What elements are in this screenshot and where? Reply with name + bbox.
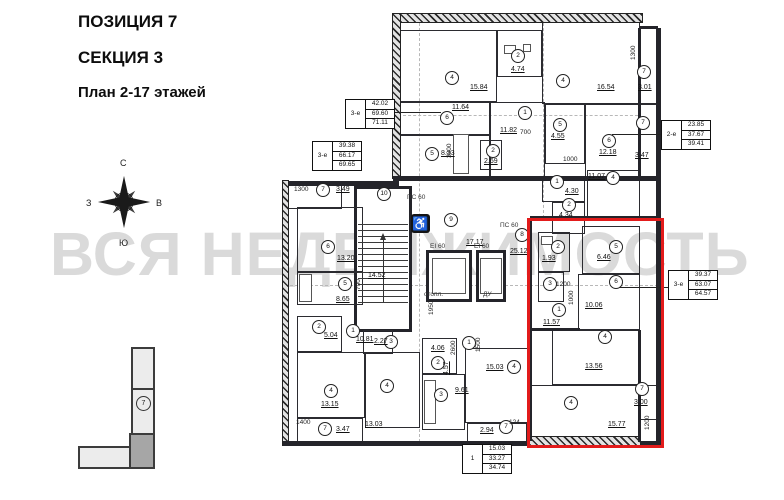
room-number-circle: 1: [462, 336, 476, 350]
room-area-label: 12.18: [599, 149, 617, 156]
room-area-label: 15.03: [486, 364, 504, 371]
room-area-label: 9.61: [455, 387, 469, 394]
unit-areas: 39.3866.1769.65: [333, 142, 361, 170]
unit-type-label: 3-е: [346, 100, 366, 128]
room-area-label: 11.82: [500, 127, 517, 134]
annotation-label: EI 60: [430, 243, 445, 250]
wall-segment: [640, 26, 658, 29]
locator-section-divider: [132, 388, 154, 390]
room-area-label: 4.74: [511, 66, 525, 73]
table-leader-line: [388, 112, 441, 113]
room-number-circle: 4: [324, 384, 338, 398]
room-area-label: 4.57: [443, 361, 450, 375]
room-number-circle: 4: [445, 71, 459, 85]
room-area-label: 2.69: [484, 158, 498, 165]
room-outline: [465, 348, 530, 423]
unit-type-label: 3-е: [669, 271, 689, 299]
dimension-label: 1500: [475, 338, 482, 352]
dimension-label: 700: [355, 279, 362, 290]
highlighted-apartment-outline: [527, 218, 664, 448]
stair-direction-arrow: [383, 236, 384, 302]
unit-areas: 15.0333.2734.74: [483, 445, 511, 473]
room-number-circle: 4: [606, 171, 620, 185]
unit-info-table: 3-е39.3866.1769.65: [312, 141, 362, 171]
room-area-label: 15.84: [470, 84, 488, 91]
annotation-label: ДУ: [483, 291, 492, 298]
room-area-label: 25.12: [510, 248, 528, 255]
room-number-circle: 3: [434, 388, 448, 402]
dimension-label: 1300: [630, 46, 637, 60]
room-number-circle: 2: [486, 144, 500, 158]
room-number-circle: 6: [321, 240, 335, 254]
title-block: ПОЗИЦИЯ 7 СЕКЦИЯ 3 План 2-17 этажей: [78, 12, 206, 101]
wall-segment: [283, 181, 288, 445]
locator-current-section: [129, 433, 155, 469]
room-area-label: 4.55: [551, 133, 565, 140]
dimension-label: 1400: [296, 419, 310, 426]
room-number-circle: 5: [425, 147, 439, 161]
room-number-circle: 4: [380, 379, 394, 393]
room-area-label: 5.04: [324, 332, 338, 339]
room-number-circle: 4: [556, 74, 570, 88]
room-area-label: 11.07: [588, 173, 605, 180]
floor-plan-sheet: ПОЗИЦИЯ 7 СЕКЦИЯ 3 План 2-17 этажей ВСЯ …: [0, 0, 784, 500]
room-number-circle: 10: [377, 187, 391, 201]
unit-type-label: 3-е: [313, 142, 333, 170]
wheelchair-accessible-icon: ♿: [411, 214, 430, 233]
annotation-label: EI 60: [474, 243, 489, 250]
room-number-circle: 9: [444, 213, 458, 227]
annotation-label: отопл.: [424, 291, 443, 298]
bathroom-fixture: [523, 44, 531, 52]
dimension-label: 700: [520, 129, 531, 136]
unit-info-table: 3-е42.0269.6071.11: [345, 99, 395, 129]
room-number-circle: 4: [507, 360, 521, 374]
room-area-label: 8.65: [336, 296, 350, 303]
room-area-label: 3.49: [336, 186, 350, 193]
kitchen-counter: [299, 274, 312, 302]
elevator-car: [432, 258, 466, 294]
room-area-label: 16.54: [597, 84, 615, 91]
unit-areas: 39.3763.0764.57: [689, 271, 717, 299]
unit-info-table: 3-е39.3763.0764.57: [668, 270, 718, 300]
dimension-label: 124: [509, 419, 520, 426]
locator-horizontal-wing: [78, 446, 131, 469]
room-number-circle: 5: [338, 277, 352, 291]
room-area-label: 13.15: [321, 401, 339, 408]
wall-segment: [393, 14, 642, 22]
room-area-label: 2.27: [374, 338, 388, 345]
room-number-circle: 2: [511, 49, 525, 63]
dimension-label: 2600: [450, 341, 457, 355]
locator-position-number: 7: [136, 396, 151, 411]
room-area-label: 4.30: [565, 188, 579, 195]
room-area-label: 2.94: [480, 427, 494, 434]
unit-info-table: 115.0333.2734.74: [462, 444, 512, 474]
room-number-circle: 1: [550, 175, 564, 189]
dimension-label: 1000: [563, 156, 577, 163]
dimension-label: 3000: [446, 144, 453, 158]
room-area-label: 10.81: [356, 336, 374, 343]
room-area-label: 3.47: [336, 426, 350, 433]
floors-subtitle: План 2-17 этажей: [78, 84, 206, 101]
room-number-circle: 7: [318, 422, 332, 436]
room-area-label: 13.20: [337, 255, 355, 262]
room-number-circle: 7: [316, 183, 330, 197]
room-area-label: 3.47: [635, 152, 649, 159]
unit-areas: 23.8537.6739.41: [682, 121, 710, 149]
unit-type-label: 1: [463, 445, 483, 473]
dimension-label: 1300: [294, 186, 308, 193]
room-area-label: 4.06: [431, 345, 445, 352]
kitchen-counter: [453, 134, 469, 174]
room-number-circle: 7: [637, 65, 651, 79]
elevator-car: [480, 258, 502, 294]
room-number-circle: 6: [602, 134, 616, 148]
room-number-circle: 2: [562, 198, 576, 212]
room-area-label: 13.03: [365, 421, 383, 428]
section-title: СЕКЦИЯ 3: [78, 48, 206, 68]
room-outline: [397, 30, 497, 102]
room-number-circle: 6: [440, 111, 454, 125]
unit-areas: 42.0269.6071.11: [366, 100, 394, 128]
room-area-label: 11.64: [452, 104, 469, 111]
annotation-label: ПС 60: [407, 194, 425, 201]
room-outline: [542, 22, 640, 104]
room-number-circle: 1: [518, 106, 532, 120]
kitchen-counter: [424, 380, 436, 424]
wall-segment: [393, 14, 400, 178]
unit-type-label: 2-е: [662, 121, 682, 149]
table-leader-line: [612, 134, 662, 135]
position-title: ПОЗИЦИЯ 7: [78, 12, 206, 32]
dimension-label: 1950: [428, 301, 435, 315]
unit-info-table: 2-е23.8537.6739.41: [661, 120, 711, 150]
room-area-label: 3.01: [638, 84, 652, 91]
room-area-label: 14.52: [368, 272, 386, 279]
room-number-circle: 7: [636, 116, 650, 130]
room-number-circle: 5: [553, 118, 567, 132]
annotation-label: ПС 60: [500, 222, 518, 229]
